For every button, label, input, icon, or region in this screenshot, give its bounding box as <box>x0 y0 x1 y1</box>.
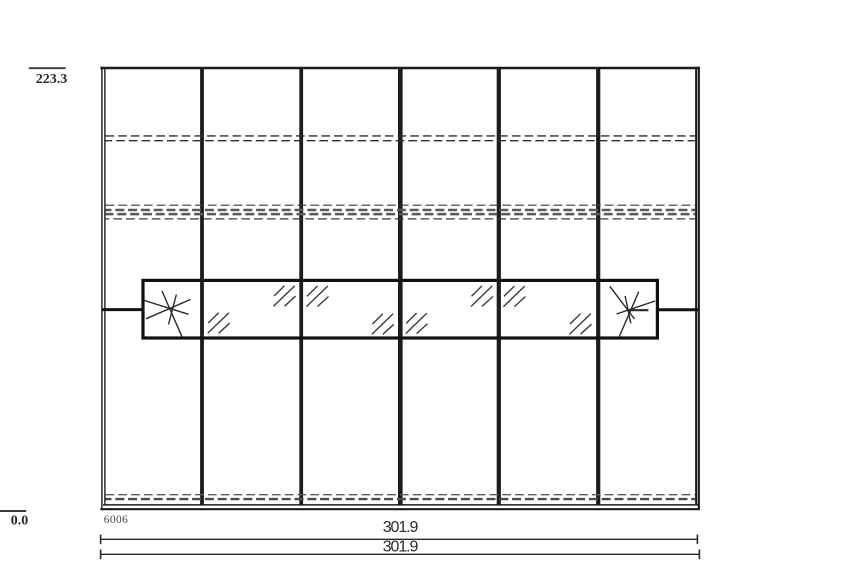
svg-text:301.9: 301.9 <box>383 539 419 556</box>
svg-text:0.0: 0.0 <box>11 514 29 529</box>
svg-text:6006: 6006 <box>104 514 129 526</box>
svg-text:223.3: 223.3 <box>36 72 68 87</box>
svg-text:301.9: 301.9 <box>383 519 419 536</box>
